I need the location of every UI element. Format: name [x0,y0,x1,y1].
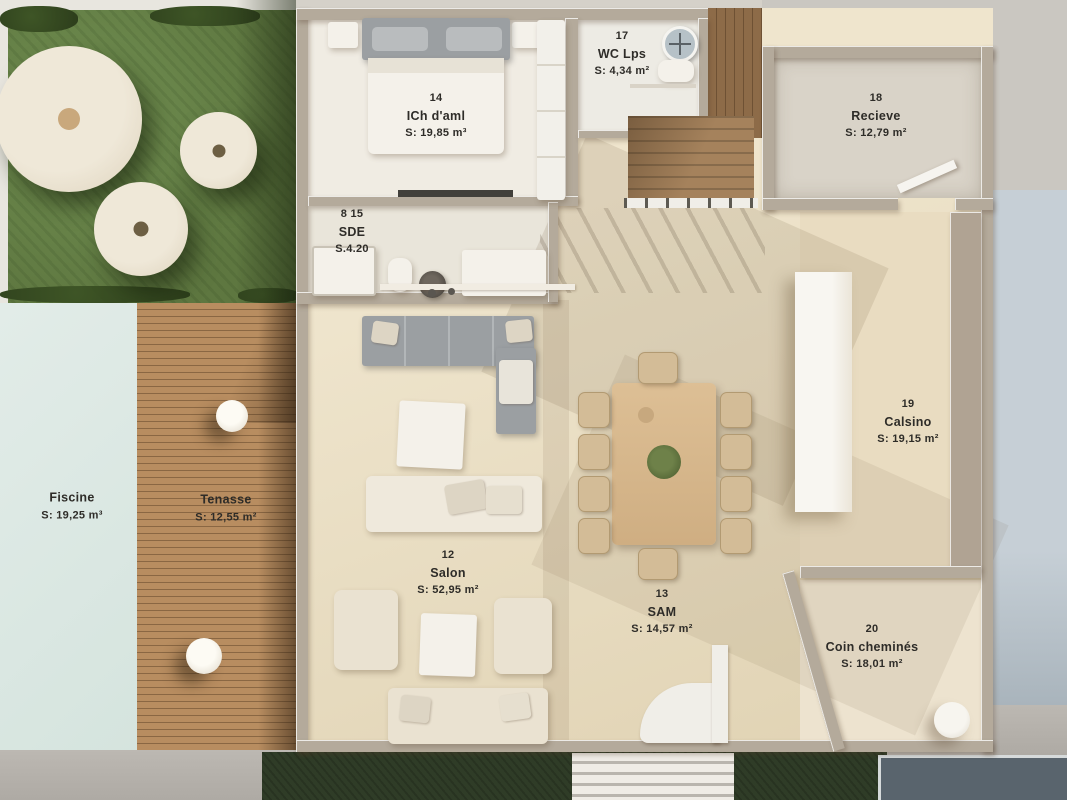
railing-shadow [540,208,765,293]
dining-chair [578,476,610,512]
room-label-piscine: Fiscine S: 19,25 m³ [41,488,102,523]
dining-chair [638,548,678,580]
dining-chair [638,352,678,384]
deck-lantern [186,638,222,674]
floor-plan: Fiscine S: 19,25 m³ Tenasse S: 12,55 m² … [0,0,1067,800]
garden-area [0,0,300,303]
fireplace-pouf [934,702,970,738]
kitchen-tall-units [950,212,981,570]
wall-recieve-top [762,46,993,58]
wall-recieve-left [762,46,774,210]
exterior-steps [572,753,734,800]
room-label-salon: 12 Salon S: 52,95 m² [417,547,478,599]
console-shelf [380,284,575,290]
swimming-pool [0,303,137,752]
wall-right [981,46,993,752]
console-candle [448,288,455,295]
bush [0,6,78,32]
side-table [419,613,477,677]
dining-chair [578,392,610,428]
round-mirror [662,26,698,62]
room-label-terrasse: Tenasse S: 12,55 m² [195,490,256,525]
armchair [334,590,398,670]
room-label-coin-cheminee: 20 Coin cheminés S: 18,01 m² [826,621,919,673]
wall-recieve-bottom [955,198,993,210]
dining-chair [578,518,610,554]
kitchen-island [795,272,852,512]
console-candle [428,289,436,297]
nightstand [328,22,358,48]
wc-toilet [658,60,694,82]
staircase-up [628,116,754,200]
sofa-cushion [505,319,533,344]
wall-fireplace-top [800,566,981,578]
room-label-wc: 17 WC Lps S: 4,34 m² [595,28,650,80]
bush [0,286,190,303]
sofa-cushion [399,695,432,724]
table-bowl [638,407,654,423]
dining-chair [720,476,752,512]
room-label-sam: 13 SAM S: 14,57 m² [631,586,692,638]
coffee-table [396,400,465,469]
exterior-top-strip [296,0,762,8]
dining-chair [720,518,752,554]
round-daybed-small [180,112,257,189]
deck-lantern [216,400,248,432]
stair-railing [624,198,758,208]
dining-chair [578,434,610,470]
exterior-right-top [993,0,1067,190]
room-label-sde: 8 15 SDE S.4.20 [335,206,369,258]
room-label-cuisine: 19 Calsino S: 19,15 m² [877,396,938,448]
wall-left [296,8,308,752]
room-label-recieve: 18 Recieve S: 12,79 m² [845,90,906,142]
armchair [494,598,552,674]
round-daybed-large [0,46,142,192]
wall-bedroom-right [565,18,578,202]
wardrobe [537,20,565,200]
sofa-cushion [498,692,531,722]
exterior-right-path [993,190,1067,705]
chaise-throw [499,360,533,404]
sofa-cushion [486,486,522,514]
wc-shelf [630,84,696,88]
tv-console [398,190,513,197]
round-daybed-medium [94,182,188,276]
terrace-deck [137,303,296,752]
floor-shadow [543,300,569,740]
stair-down-railing [712,645,728,743]
pillow [446,27,502,51]
wall-recieve-bottom [762,198,898,210]
sofa-cushion [371,320,400,345]
dining-chair [720,392,752,428]
table-plant [647,445,681,479]
dining-chair [720,434,752,470]
exterior-right-bottom [993,705,1067,755]
slate-patio [878,755,1067,800]
room-label-chambre-ami: 14 ICh d'aml S: 19,85 m³ [405,90,466,142]
pillow [372,27,428,51]
